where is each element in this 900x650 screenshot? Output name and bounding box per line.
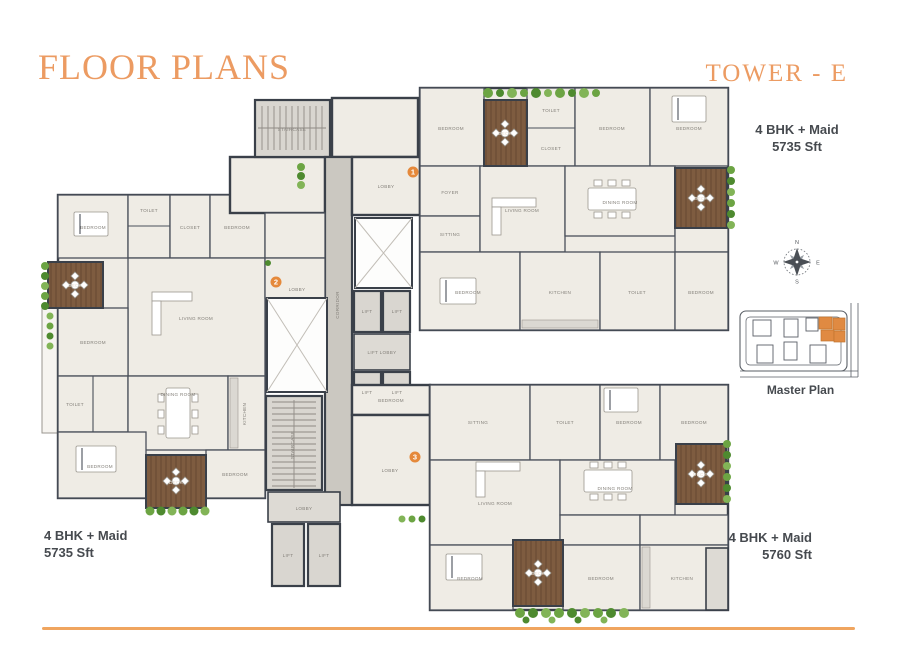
room-label: TOILET [628,290,646,295]
room-label: LOBBY [378,184,395,189]
room-label: LIFT [319,553,330,558]
room-label: TOILET [140,208,158,213]
room-label: LIVING ROOM [505,208,539,213]
room-label: CORRIDOR [335,291,340,319]
room-label: LIFT [392,390,403,395]
room-label: KITCHEN [671,576,693,581]
room-label: BEDROOM [455,290,481,295]
room-label: BEDROOM [224,225,250,230]
room-label: DECK [68,283,83,288]
room-label: KITCHEN [242,403,247,425]
room-label: FOYER [441,190,459,195]
room-label: BEDROOM [222,472,248,477]
room-label: TOILET [66,402,84,407]
room-label: BEDROOM [87,464,113,469]
room-label: LIVING ROOM [478,501,512,506]
room-label: BEDROOM [438,126,464,131]
compass-letter: N [795,240,799,246]
room-label: SITTING [468,420,488,425]
unit-marker-number: 3 [413,453,417,462]
room-label: LOBBY [289,287,306,292]
room-label: BEDROOM [588,576,614,581]
room-label: TOILET [542,108,560,113]
room-label: DINING ROOM [603,200,638,205]
room-label: LOBBY [296,506,313,511]
room-label: CLOSET [180,225,200,230]
room-label: LIFT [362,390,373,395]
room-label: BEDROOM [80,340,106,345]
room-label: KITCHEN [549,290,571,295]
compass-icon: NESW [773,240,820,286]
compass-letter: S [795,280,799,286]
room-label: BEDROOM [457,576,483,581]
room-label: SITTING [440,232,460,237]
room-label: BEDROOM [80,225,106,230]
room-label: BEDROOM [599,126,625,131]
room-label: LIVING ROOM [179,316,213,321]
compass-letter: W [773,261,779,267]
room-label: DECK [694,196,709,201]
master-plan-map [740,303,858,377]
room-label: BEDROOM [681,420,707,425]
room-label: TOILET [556,420,574,425]
room-label: LIFT [283,553,294,558]
floor-plan-page: FLOOR PLANS TOWER - E 4 BHK + Maid 5735 … [0,0,900,650]
room-label: BEDROOM [688,290,714,295]
room-label: LIFT LOBBY [368,350,397,355]
room-label: BEDROOM [616,420,642,425]
room-label: DECK [498,131,513,136]
unit-marker-number: 2 [274,278,278,287]
floor-plan-drawing: STAIRCASECORRIDORLOBBYLIFTLIFTLIFT LOBBY… [0,0,900,650]
plan-walls [42,88,728,610]
room-label: CLOSET [541,146,561,151]
room-label: BEDROOM [676,126,702,131]
room-label: LOBBY [382,468,399,473]
room-label: STAIRCASE [290,431,295,459]
room-label: DECK [169,480,184,485]
room-label: DECK [693,472,708,477]
tower-e-highlight [819,317,845,342]
room-label: DINING ROOM [598,486,633,491]
room-label: BEDROOM [378,398,404,403]
room-label: DINING ROOM [161,392,196,397]
room-label: LIFT [392,309,403,314]
compass-letter: E [816,261,820,267]
room-label: DECK [531,571,546,576]
unit-marker-number: 1 [411,168,415,177]
room-label: LIFT [362,309,373,314]
room-label: STAIRCASE [278,127,306,132]
